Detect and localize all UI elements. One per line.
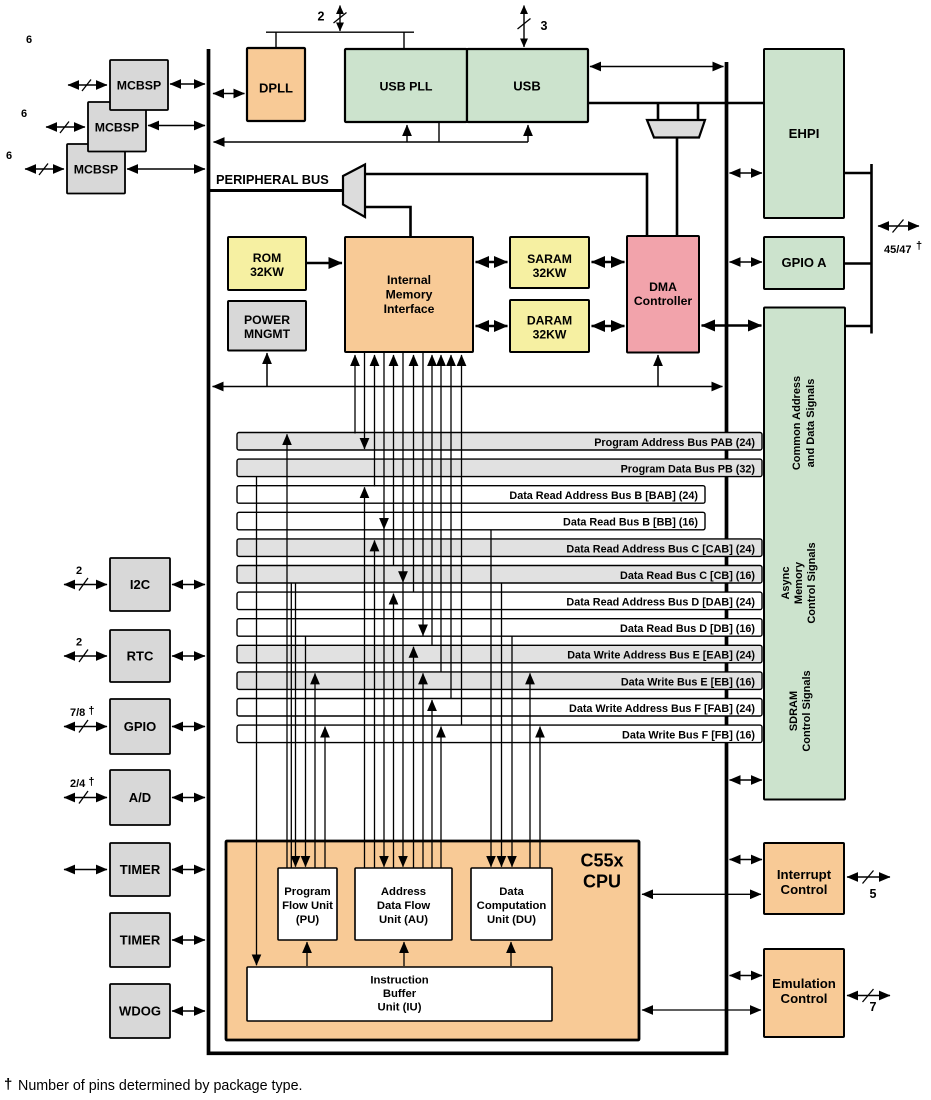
svg-text:Memory: Memory xyxy=(386,288,433,302)
svg-text:Unit (AU): Unit (AU) xyxy=(379,914,428,926)
svg-text:Program Data Bus PB (32): Program Data Bus PB (32) xyxy=(621,464,756,476)
svg-text:Data Write Address Bus E [EAB]: Data Write Address Bus E [EAB] (24) xyxy=(567,650,755,662)
svg-text:2: 2 xyxy=(76,565,82,577)
svg-text:Data Write Bus E [EB] (16): Data Write Bus E [EB] (16) xyxy=(621,676,756,688)
svg-text:PERIPHERAL BUS: PERIPHERAL BUS xyxy=(216,172,329,187)
svg-text:MNGMT: MNGMT xyxy=(244,327,291,341)
svg-text:7: 7 xyxy=(870,1000,877,1014)
svg-text:EHPI: EHPI xyxy=(789,126,820,141)
svg-text:Data Write Bus F [FB] (16): Data Write Bus F [FB] (16) xyxy=(622,730,755,742)
svg-text:Data Read Address Bus B [BAB]: Data Read Address Bus B [BAB] (24) xyxy=(509,490,698,502)
svg-text:MCBSP: MCBSP xyxy=(95,121,139,135)
svg-text:WDOG: WDOG xyxy=(119,1004,161,1019)
svg-text:ROM: ROM xyxy=(253,251,281,265)
svg-text:Program Address Bus PAB (24): Program Address Bus PAB (24) xyxy=(594,437,755,449)
svg-text:6: 6 xyxy=(21,108,27,120)
svg-text:45/47: 45/47 xyxy=(884,244,912,256)
svg-text:Control: Control xyxy=(781,991,828,1006)
svg-text:32KW: 32KW xyxy=(533,266,567,280)
svg-text:SARAM: SARAM xyxy=(527,252,572,266)
svg-text:Controller: Controller xyxy=(634,294,692,308)
svg-text:USB: USB xyxy=(513,79,540,94)
svg-text:TIMER: TIMER xyxy=(120,862,161,877)
svg-text:Data Read Bus B [BB] (16): Data Read Bus B [BB] (16) xyxy=(563,517,698,529)
svg-text:DPLL: DPLL xyxy=(259,81,293,96)
svg-text:2/4 †: 2/4 † xyxy=(70,776,94,790)
svg-text:Unit (IU): Unit (IU) xyxy=(378,1002,422,1014)
svg-text:Control: Control xyxy=(781,882,828,897)
svg-text:POWER: POWER xyxy=(244,313,290,327)
svg-text:2: 2 xyxy=(76,637,82,649)
svg-text:Interface: Interface xyxy=(384,302,435,316)
svg-text:GPIO A: GPIO A xyxy=(781,255,827,270)
svg-text:Address: Address xyxy=(381,886,426,898)
svg-text:6: 6 xyxy=(26,34,32,46)
svg-text:Instruction: Instruction xyxy=(370,975,428,987)
svg-text:A/D: A/D xyxy=(129,790,151,805)
svg-text:C55x: C55x xyxy=(580,851,623,871)
svg-text:Buffer: Buffer xyxy=(383,988,417,1000)
svg-text:Data Read Bus D [DB] (16): Data Read Bus D [DB] (16) xyxy=(620,623,755,635)
svg-text:7/8 †: 7/8 † xyxy=(70,705,94,719)
svg-text:2: 2 xyxy=(318,10,325,24)
svg-text:USB PLL: USB PLL xyxy=(379,80,432,94)
svg-text:32KW: 32KW xyxy=(250,265,284,279)
svg-text:32KW: 32KW xyxy=(533,328,567,342)
svg-text:Data Read Address Bus C [CAB]: Data Read Address Bus C [CAB] (24) xyxy=(566,543,755,555)
svg-text:6: 6 xyxy=(6,150,12,162)
svg-text:TIMER: TIMER xyxy=(120,933,161,948)
svg-text:†: † xyxy=(4,1076,12,1093)
svg-text:Computation: Computation xyxy=(477,900,547,912)
svg-text:Interrupt: Interrupt xyxy=(777,867,832,882)
svg-text:MCBSP: MCBSP xyxy=(117,79,161,93)
svg-text:Unit (DU): Unit (DU) xyxy=(487,914,536,926)
svg-text:DMA: DMA xyxy=(649,280,677,294)
svg-text:Data Read Bus C [CB] (16): Data Read Bus C [CB] (16) xyxy=(620,570,755,582)
svg-text:Data Flow: Data Flow xyxy=(377,900,431,912)
svg-text:3: 3 xyxy=(541,19,548,33)
svg-text:MCBSP: MCBSP xyxy=(74,163,118,177)
svg-text:Program: Program xyxy=(284,886,330,898)
svg-text:†: † xyxy=(916,240,922,252)
svg-text:Emulation: Emulation xyxy=(772,976,836,991)
svg-text:Data Write Address Bus F [FAB]: Data Write Address Bus F [FAB] (24) xyxy=(569,703,755,715)
svg-text:Data: Data xyxy=(499,886,524,898)
svg-text:RTC: RTC xyxy=(127,649,154,664)
svg-text:DARAM: DARAM xyxy=(527,314,572,328)
svg-text:GPIO: GPIO xyxy=(124,719,157,734)
svg-text:Internal: Internal xyxy=(387,273,431,287)
svg-text:Number of pins determined by p: Number of pins determined by package typ… xyxy=(18,1078,303,1094)
svg-text:Flow Unit: Flow Unit xyxy=(282,900,333,912)
svg-text:Data Read Address Bus D [DAB]: Data Read Address Bus D [DAB] (24) xyxy=(566,597,755,609)
svg-text:5: 5 xyxy=(870,887,877,901)
svg-text:CPU: CPU xyxy=(583,872,621,892)
svg-text:(PU): (PU) xyxy=(296,914,319,926)
svg-text:I2C: I2C xyxy=(130,577,151,592)
